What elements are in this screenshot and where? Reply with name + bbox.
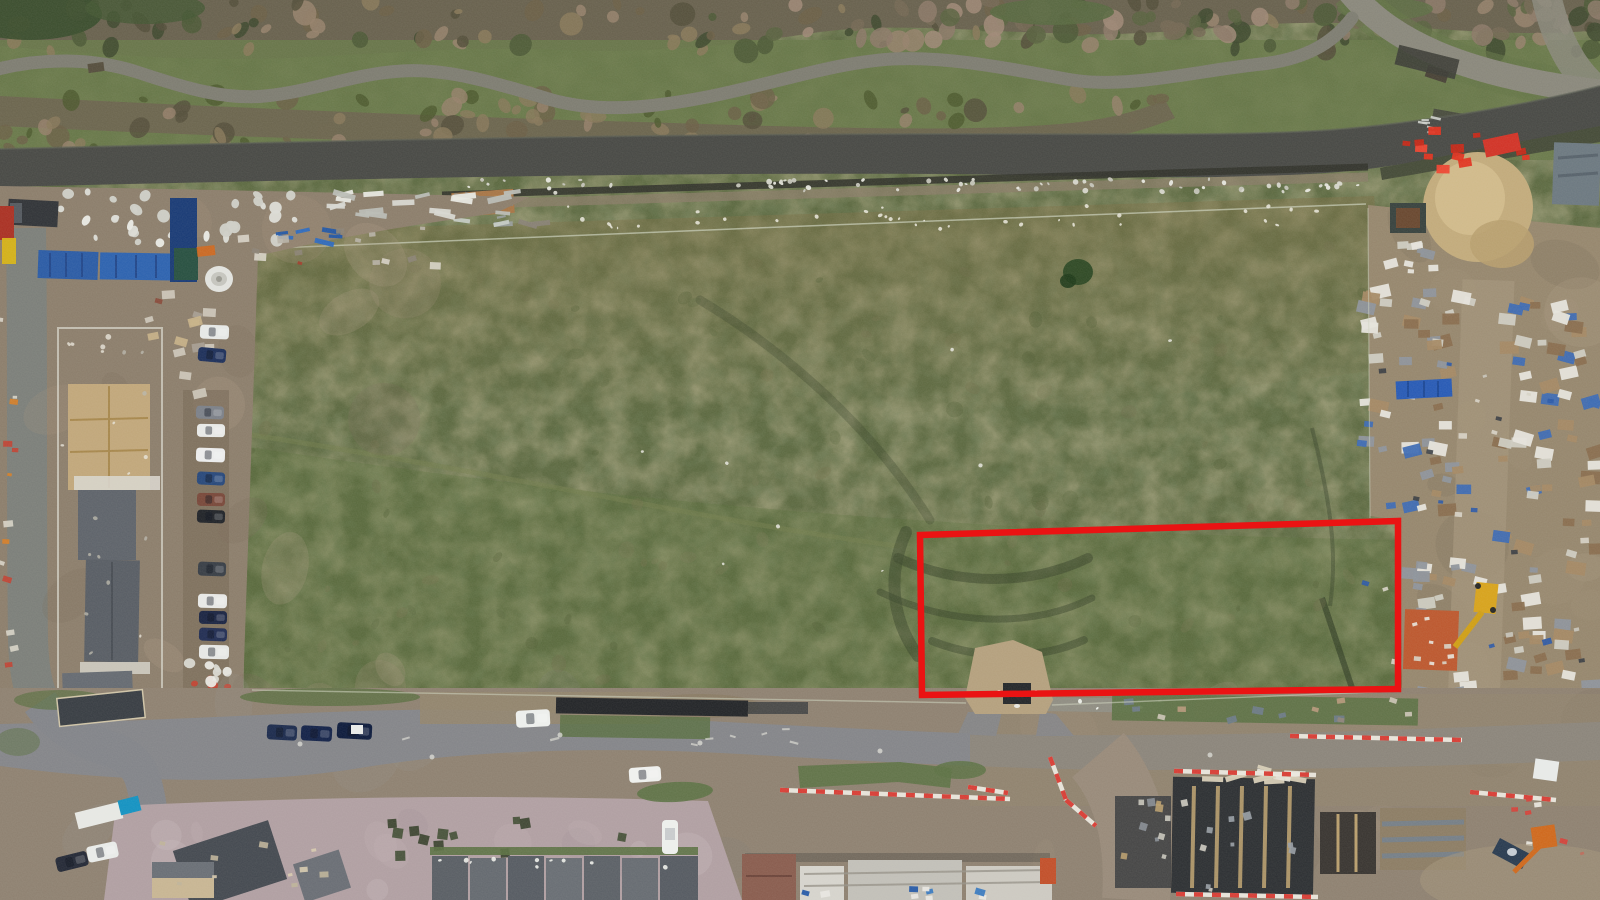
aerial-photo-viewport — [0, 0, 1600, 900]
aerial-photo — [0, 0, 1600, 900]
photo-grain — [0, 0, 1600, 900]
